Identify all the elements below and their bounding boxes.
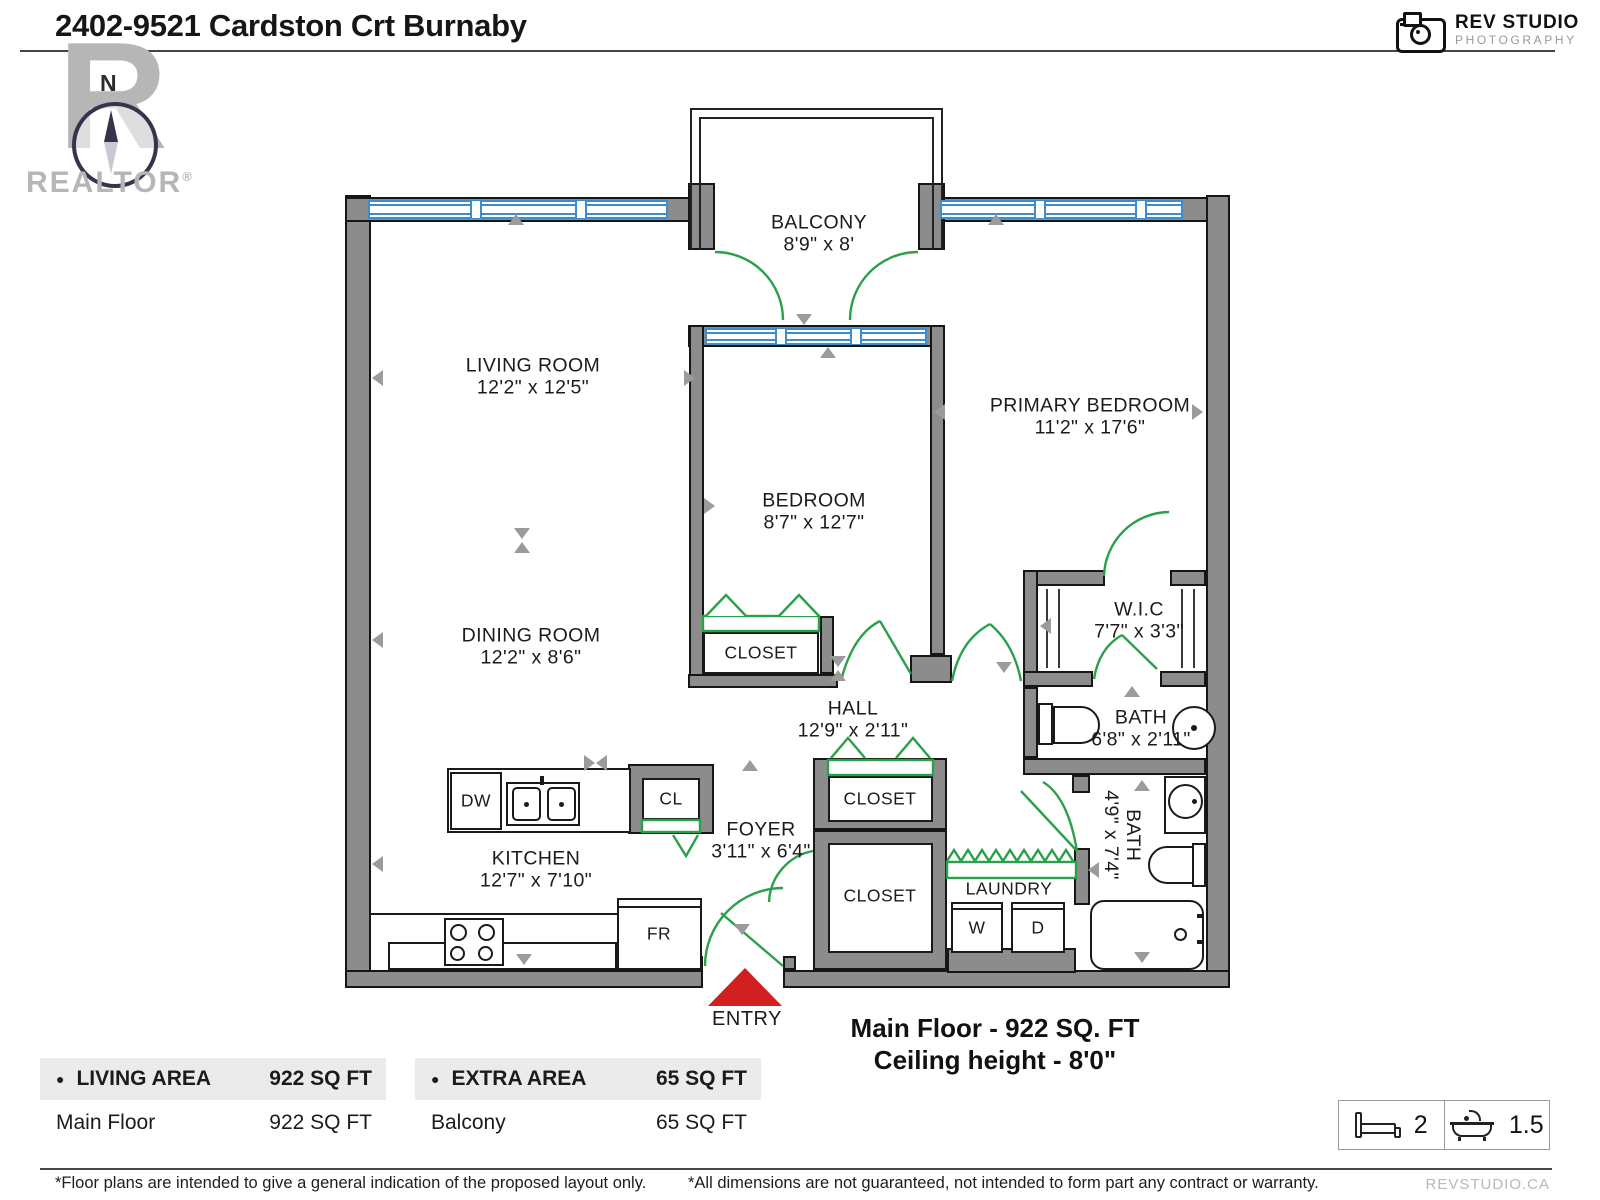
- sink-drain: [559, 802, 564, 807]
- wic-door-arc: [1104, 512, 1169, 576]
- bed-bath-stats: 2 1.5: [1338, 1100, 1550, 1150]
- sink-faucet: [540, 776, 544, 785]
- wall: [1023, 671, 1093, 687]
- table-header: ● LIVING AREA 922 SQ FT: [40, 1058, 386, 1100]
- dim-marker: [704, 498, 715, 514]
- dim-marker: [796, 314, 812, 325]
- dryer-label: D: [1031, 918, 1044, 939]
- wall: [1072, 775, 1090, 793]
- room-label-primary: PRIMARY BEDROOM11'2" x 17'6": [990, 396, 1190, 439]
- toilet-bowl: [1148, 846, 1194, 884]
- dryer-lid: [1013, 908, 1063, 910]
- bifold-door: [779, 595, 819, 616]
- dim-marker: [1134, 952, 1150, 963]
- dim-marker: [1124, 686, 1140, 697]
- room-label-balcony: BALCONY8'9" x 8': [771, 213, 867, 256]
- floorplan-sheet: { "header": {"title": "2402-9521 Cardsto…: [0, 0, 1600, 1200]
- floor-summary: Main Floor - 922 SQ. FT Ceiling height -…: [851, 1012, 1140, 1076]
- closet-label: CLOSET: [843, 886, 916, 907]
- closet-shelf: [703, 616, 819, 631]
- dim-marker: [742, 760, 758, 771]
- table-row: Balcony 65 SQ FT: [415, 1100, 761, 1146]
- footer-divider: [40, 1168, 1552, 1170]
- wall: [1023, 758, 1206, 775]
- sink-drain: [1191, 725, 1197, 731]
- extra-area-table: ● EXTRA AREA 65 SQ FT Balcony 65 SQ FT: [415, 1058, 761, 1146]
- entry-label: ENTRY: [712, 1008, 782, 1031]
- dim-marker: [514, 528, 530, 539]
- toilet-tank: [1192, 843, 1206, 887]
- tub-faucet: [1197, 914, 1204, 918]
- beds-count: 2: [1414, 1111, 1428, 1140]
- table-row: Main Floor 922 SQ FT: [40, 1100, 386, 1146]
- closet-label: CL: [659, 789, 682, 810]
- compass-needle-north: [104, 110, 118, 142]
- washer-label: W: [968, 918, 985, 939]
- stove: [444, 918, 504, 966]
- room-label-wic: W.I.C7'7" x 3'3": [1094, 600, 1184, 643]
- laundry-label: LAUNDRY: [966, 879, 1053, 900]
- fridge-label: FR: [647, 924, 671, 945]
- room-label-living: LIVING ROOM12'2" x 12'5": [466, 356, 600, 399]
- compass-north-label: N: [100, 70, 117, 97]
- wall: [1160, 671, 1206, 687]
- wall: [1206, 195, 1230, 988]
- sink-drain: [524, 802, 529, 807]
- bifold-door: [706, 595, 746, 616]
- dim-marker: [734, 924, 750, 935]
- wall: [783, 956, 796, 970]
- tub-faucet: [1197, 940, 1204, 944]
- window: [940, 200, 1183, 219]
- wall: [1170, 570, 1206, 586]
- footnote-right: *All dimensions are not guaranteed, not …: [688, 1174, 1319, 1193]
- baths-cell: 1.5: [1444, 1101, 1550, 1149]
- fridge-line: [619, 906, 700, 908]
- dim-marker: [372, 370, 383, 386]
- entry-arrow: [708, 968, 782, 1006]
- bath-sink: [1168, 784, 1203, 819]
- wall: [910, 655, 952, 683]
- bedroom-door: [842, 621, 911, 677]
- laundry-accordion-door: [947, 850, 1073, 861]
- dim-marker: [988, 214, 1004, 225]
- counter-edge: [370, 913, 617, 915]
- bath-door: [1021, 782, 1077, 851]
- wall: [1023, 570, 1038, 687]
- dim-marker: [830, 670, 846, 681]
- wall: [345, 970, 703, 988]
- table-header: ● EXTRA AREA 65 SQ FT: [415, 1058, 761, 1100]
- closet-label: CLOSET: [724, 643, 797, 664]
- tub-drain: [1174, 928, 1187, 941]
- dim-marker: [372, 632, 383, 648]
- dim-marker: [934, 404, 945, 420]
- bath-icon: [1450, 1109, 1496, 1141]
- dim-marker: [584, 755, 595, 771]
- dim-marker: [1040, 618, 1051, 634]
- website-label: REVSTUDIO.CA: [1380, 1176, 1550, 1193]
- room-label-dining: DINING ROOM12'2" x 8'6": [462, 626, 601, 669]
- room-label-foyer: FOYER3'11" x 6'4": [711, 820, 810, 863]
- washer-lid: [953, 908, 1001, 910]
- dim-marker: [1192, 404, 1203, 420]
- balcony-door-arc: [850, 252, 918, 320]
- dim-marker: [372, 856, 383, 872]
- closet-door-fold: [673, 835, 698, 856]
- wall: [688, 674, 838, 688]
- room-label-kitchen: KITCHEN12'7" x 7'10": [480, 849, 592, 892]
- bed-icon: [1355, 1110, 1401, 1140]
- camera-icon: [1396, 12, 1444, 48]
- bullet-icon: ●: [56, 1071, 64, 1087]
- wall: [930, 325, 945, 655]
- rev-studio-name: REV STUDIO: [1455, 12, 1579, 34]
- dim-marker: [684, 370, 695, 386]
- realtor-wordmark: REALTOR®: [26, 166, 194, 200]
- dim-marker: [514, 542, 530, 553]
- window: [705, 328, 927, 345]
- wall: [345, 195, 371, 988]
- rev-studio-tagline: PHOTOGRAPHY: [1455, 33, 1577, 47]
- room-label-bath: BATH6'8" x 2'11": [1091, 708, 1190, 751]
- header-divider: [20, 50, 1555, 52]
- beds-cell: 2: [1339, 1101, 1444, 1149]
- sink-drain: [1192, 799, 1197, 804]
- dim-marker: [996, 662, 1012, 673]
- room-label-hall: HALL12'9" x 2'11": [798, 699, 909, 742]
- dim-marker: [596, 755, 607, 771]
- baths-count: 1.5: [1509, 1111, 1544, 1140]
- dim-marker: [830, 656, 846, 667]
- laundry-shelf: [947, 862, 1076, 878]
- bullet-icon: ●: [431, 1071, 439, 1087]
- wall: [1023, 687, 1038, 758]
- room-label-bath2: BATH4'9" x 7'4": [1100, 790, 1144, 880]
- dim-marker: [516, 954, 532, 965]
- toilet-tank: [1038, 703, 1053, 745]
- dishwasher-label: DW: [461, 791, 491, 812]
- balcony-door-arc: [715, 252, 783, 320]
- dim-marker: [820, 347, 836, 358]
- living-area-table: ● LIVING AREA 922 SQ FT Main Floor 922 S…: [40, 1058, 386, 1146]
- dim-marker: [508, 214, 524, 225]
- closet-label: CLOSET: [843, 789, 916, 810]
- footnote-left: *Floor plans are intended to give a gene…: [55, 1174, 646, 1193]
- dim-marker: [1088, 862, 1099, 878]
- room-label-bedroom: BEDROOM8'7" x 12'7": [762, 491, 866, 534]
